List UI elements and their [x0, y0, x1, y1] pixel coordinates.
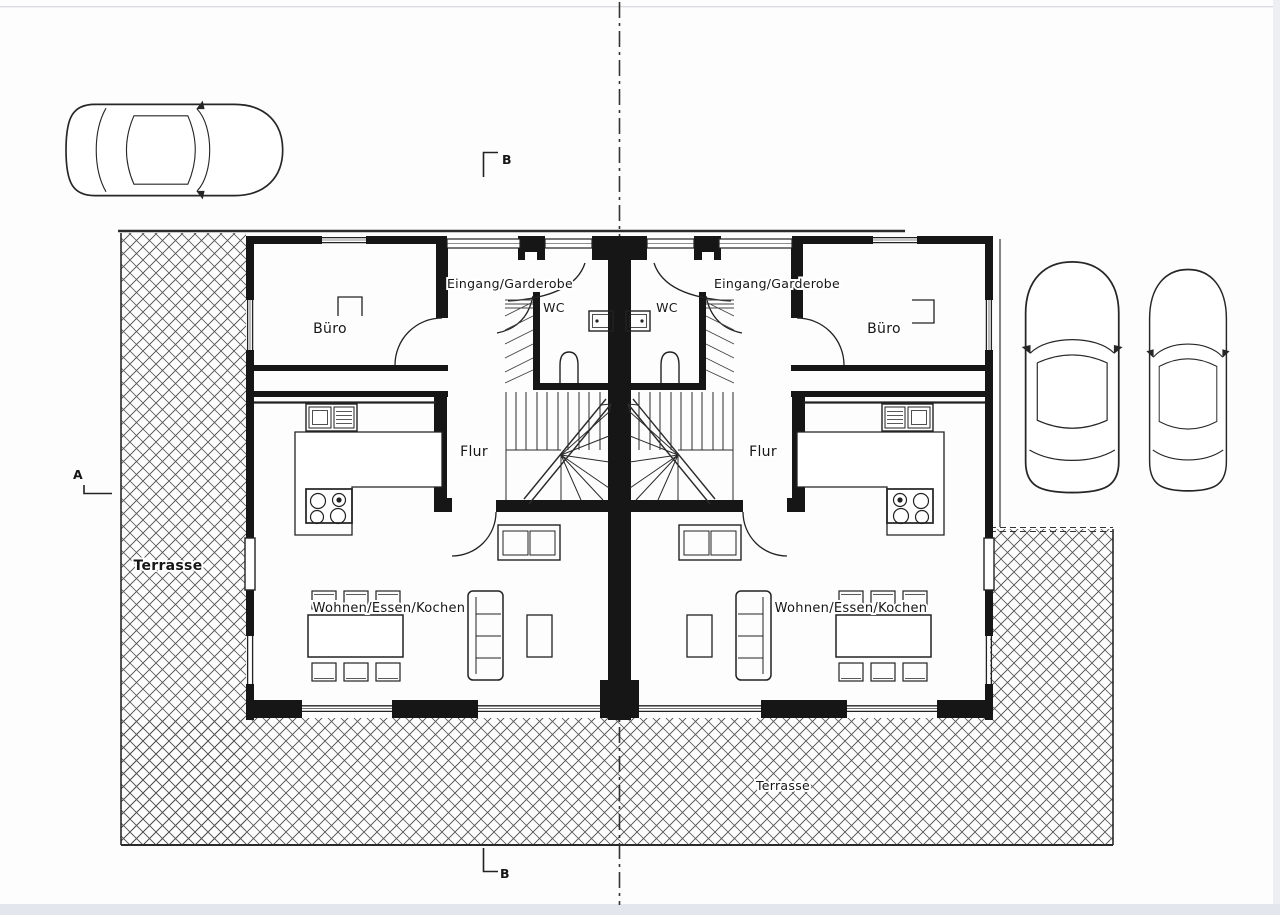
- terrace-hatch-bottom: [121, 718, 1113, 845]
- room-label-terrasse-right: Terrasse: [755, 778, 810, 793]
- room-label-flur-right: Flur: [749, 444, 777, 460]
- terrace-hatch-right: [990, 529, 1113, 718]
- room-label-wohnen-left: Wohnen/Essen/Kochen: [313, 601, 466, 616]
- page-edge-bottom: [0, 904, 1280, 915]
- room-label-flur-left: Flur: [460, 444, 488, 460]
- room-label-eingang-left: Eingang/Garderobe: [447, 276, 573, 291]
- room-label-buero-right: Büro: [867, 321, 901, 337]
- room-label-wc-left: WC: [543, 300, 565, 315]
- section-marker-b-bottom: B: [500, 866, 510, 881]
- section-marker-b-top: B: [502, 152, 512, 167]
- section-marker-a: A: [73, 467, 83, 482]
- room-label-wc-right: WC: [656, 300, 678, 315]
- room-label-terrasse-left: Terrasse: [133, 558, 202, 574]
- floor-plan-screenshot: B B A Eingang/Garderobe WC Büro Flur Woh…: [0, 0, 1280, 915]
- car-icon-right-2: [1146, 270, 1229, 491]
- car-icon-right-1: [1022, 262, 1123, 493]
- floor-plan-canvas: B B A Eingang/Garderobe WC Büro Flur Woh…: [0, 0, 1280, 915]
- room-label-wohnen-right: Wohnen/Essen/Kochen: [775, 601, 928, 616]
- room-label-buero-left: Büro: [313, 321, 347, 337]
- page-edge-top: [0, 6, 1280, 7]
- room-label-eingang-right: Eingang/Garderobe: [714, 276, 840, 291]
- car-icon-top-left: [66, 101, 283, 200]
- page-edge-right: [1273, 0, 1280, 915]
